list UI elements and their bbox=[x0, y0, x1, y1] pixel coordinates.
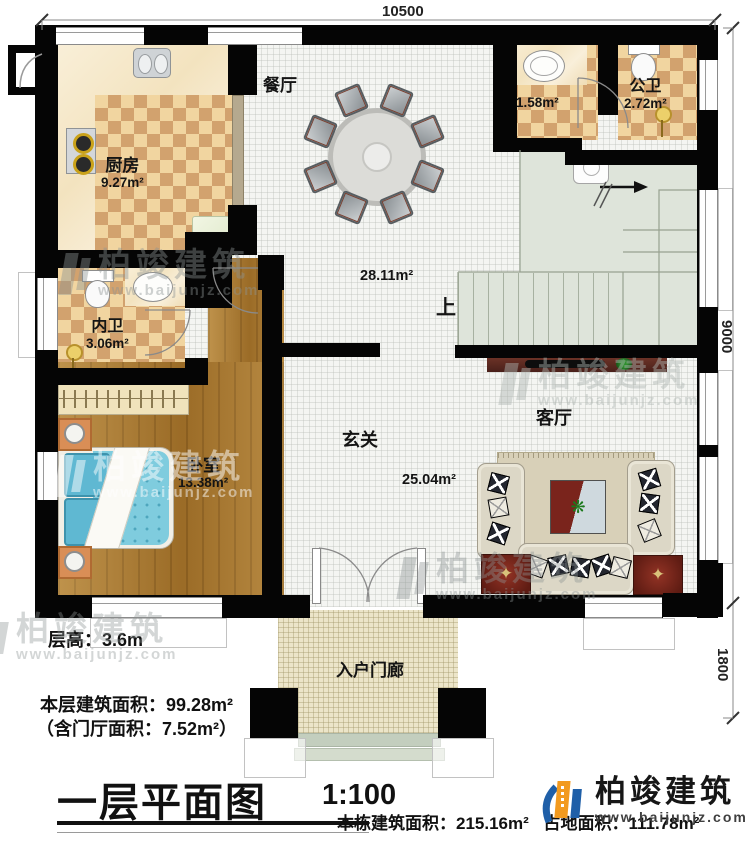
inner-bath-drain bbox=[66, 344, 83, 361]
kitchen-sliding-door bbox=[232, 95, 244, 207]
burner bbox=[73, 154, 94, 175]
wall-innerbath-bottom bbox=[35, 368, 187, 385]
stair-treads bbox=[458, 273, 623, 345]
dining-area: 28.11m² bbox=[360, 268, 413, 284]
brand-website: www.baijunjz.com bbox=[595, 807, 748, 828]
wall-bedroom-right bbox=[262, 268, 282, 598]
porch-step-2 bbox=[294, 748, 445, 761]
window-kitchen-top bbox=[56, 27, 144, 45]
wall-innerbath-right-bottom bbox=[185, 358, 208, 385]
lamp bbox=[64, 551, 85, 572]
sofa-bottom bbox=[518, 543, 634, 595]
floor-area-note: 本层建筑面积：99.28m² bbox=[40, 691, 233, 717]
hall-area-note: （含门厅面积：7.52m²） bbox=[36, 715, 237, 741]
washroom-label: 1.58m² bbox=[516, 95, 559, 110]
wall-kitchen-bottom bbox=[35, 250, 187, 268]
floor-plan-canvas: ❋ ✦ ✦ bbox=[0, 0, 750, 847]
public-toilet bbox=[628, 43, 658, 81]
sofa-cushion bbox=[609, 556, 632, 579]
kitchen-label: 厨房 9.27m² bbox=[101, 156, 144, 190]
public-bath-label: 公卫 2.72m² bbox=[624, 78, 667, 111]
sill-living-right bbox=[718, 370, 733, 564]
porch-name: 入户门廊 bbox=[336, 661, 404, 680]
tv-plant bbox=[616, 358, 632, 370]
nightstand-bottom bbox=[58, 546, 92, 579]
window-living-right-1 bbox=[699, 373, 718, 445]
building-area-text: 本栋建筑面积：215.16m² bbox=[337, 814, 529, 833]
dining-name: 餐厅 bbox=[263, 76, 297, 95]
dining-area-label: 28.11m² bbox=[360, 268, 413, 284]
sofa-right bbox=[627, 460, 675, 556]
end-table-left: ✦ bbox=[481, 554, 531, 594]
public-bath-area: 2.72m² bbox=[624, 96, 667, 111]
sofa-cushion bbox=[570, 557, 592, 579]
inner-bath-area: 3.06m² bbox=[86, 336, 129, 351]
sofa-cushion bbox=[487, 472, 510, 495]
sofa-cushion bbox=[638, 468, 662, 492]
inner-bath-name: 内卫 bbox=[86, 318, 129, 336]
window-dining-top bbox=[208, 27, 302, 45]
toilet-bowl bbox=[85, 280, 110, 308]
table-plant: ❋ bbox=[570, 497, 585, 518]
tv bbox=[525, 360, 605, 368]
sill-living-bottom bbox=[583, 618, 675, 650]
dim-top-value: 10500 bbox=[382, 3, 424, 20]
burner bbox=[73, 133, 94, 154]
wall-bath-left bbox=[493, 25, 517, 150]
plan-title: 一层平面图 bbox=[57, 770, 267, 828]
window-publicbath-right bbox=[699, 60, 718, 110]
wall-stair-bottom bbox=[455, 345, 700, 358]
wall-foyer-stub bbox=[262, 343, 380, 357]
window-bedroom-left bbox=[37, 452, 58, 500]
porch-pillar-right bbox=[438, 688, 486, 738]
porch-step-1 bbox=[298, 733, 441, 747]
floor-height-note: 层高：3.6m bbox=[48, 626, 143, 652]
basin-inner bbox=[530, 56, 558, 76]
stairs-up-label: 上 bbox=[436, 297, 456, 319]
brand-logo-icon bbox=[541, 776, 589, 828]
wall-bath-divider bbox=[598, 25, 618, 115]
bedroom-name: 卧室 bbox=[178, 456, 228, 475]
sofa-cushion bbox=[487, 496, 509, 518]
kitchen-sink bbox=[133, 48, 171, 78]
dim-right-porch-value: 1800 bbox=[714, 648, 731, 681]
title-underline-thin bbox=[57, 832, 369, 833]
stove bbox=[66, 128, 96, 174]
window-stairs-right bbox=[699, 190, 718, 307]
window-bedroom-bottom bbox=[92, 597, 222, 618]
brand-building-icon bbox=[0, 615, 8, 661]
bed bbox=[58, 447, 174, 549]
public-bath-name: 公卫 bbox=[624, 78, 667, 96]
nightstand-top bbox=[58, 418, 92, 451]
sofa-cushion bbox=[547, 554, 570, 577]
foyer-name: 玄关 bbox=[342, 430, 378, 450]
inner-bath-label: 内卫 3.06m² bbox=[86, 318, 129, 351]
foyer-area-label: 25.04m² bbox=[402, 472, 456, 488]
end-table-right: ✦ bbox=[633, 555, 683, 595]
sink-bowl bbox=[154, 54, 168, 74]
wall-jut-br bbox=[697, 563, 723, 617]
brand-name: 柏竣建筑 bbox=[595, 776, 748, 807]
foyer-area: 25.04m² bbox=[402, 472, 456, 488]
bedroom-label: 卧室 13.38m² bbox=[178, 456, 228, 490]
wall-kitchen-dining-stub bbox=[228, 205, 257, 255]
toilet-bowl bbox=[631, 53, 656, 81]
living-label: 客厅 bbox=[536, 408, 572, 428]
porch-pillar-left bbox=[250, 688, 298, 738]
porch-label: 入户门廊 bbox=[336, 661, 404, 680]
window-living-bottom bbox=[585, 597, 662, 618]
sofa-cushion bbox=[637, 518, 662, 543]
window-innerbath-left bbox=[37, 278, 58, 350]
kitchen-area: 9.27m² bbox=[101, 175, 144, 190]
sill-stairs-right bbox=[718, 188, 733, 311]
sink-bowl bbox=[138, 54, 152, 74]
bedroom-area: 13.38m² bbox=[178, 475, 228, 490]
brand-logo: 柏竣建筑 www.baijunjz.com bbox=[541, 776, 748, 828]
lamp bbox=[64, 423, 85, 444]
sofa-cushion bbox=[487, 522, 511, 546]
wall-publicbath-bottom bbox=[565, 150, 718, 165]
sofa-cushion bbox=[639, 493, 660, 514]
plan-scale: 1:100 bbox=[322, 779, 396, 812]
kitchen-name: 厨房 bbox=[101, 156, 144, 175]
window-living-right-2 bbox=[699, 457, 718, 560]
dining-label: 餐厅 bbox=[263, 76, 297, 95]
washroom-basin bbox=[523, 50, 565, 82]
coffee-table: ❋ bbox=[550, 480, 606, 534]
sofa-left bbox=[477, 463, 525, 559]
entry-door-leaf-left bbox=[312, 548, 321, 604]
inner-toilet bbox=[82, 270, 112, 308]
living-name: 客厅 bbox=[536, 408, 572, 428]
title-underline-thick bbox=[57, 821, 369, 825]
dining-table-center bbox=[362, 142, 392, 172]
foyer-label: 玄关 bbox=[342, 430, 378, 450]
public-bath-drain-stem bbox=[661, 120, 663, 137]
inner-basin bbox=[133, 272, 173, 302]
stairs-up-text: 上 bbox=[436, 297, 456, 319]
washroom-area: 1.58m² bbox=[516, 95, 559, 110]
wardrobe bbox=[58, 383, 189, 415]
wall-innerbath-right-top bbox=[185, 232, 232, 308]
dim-right-main-value: 9000 bbox=[718, 320, 735, 353]
